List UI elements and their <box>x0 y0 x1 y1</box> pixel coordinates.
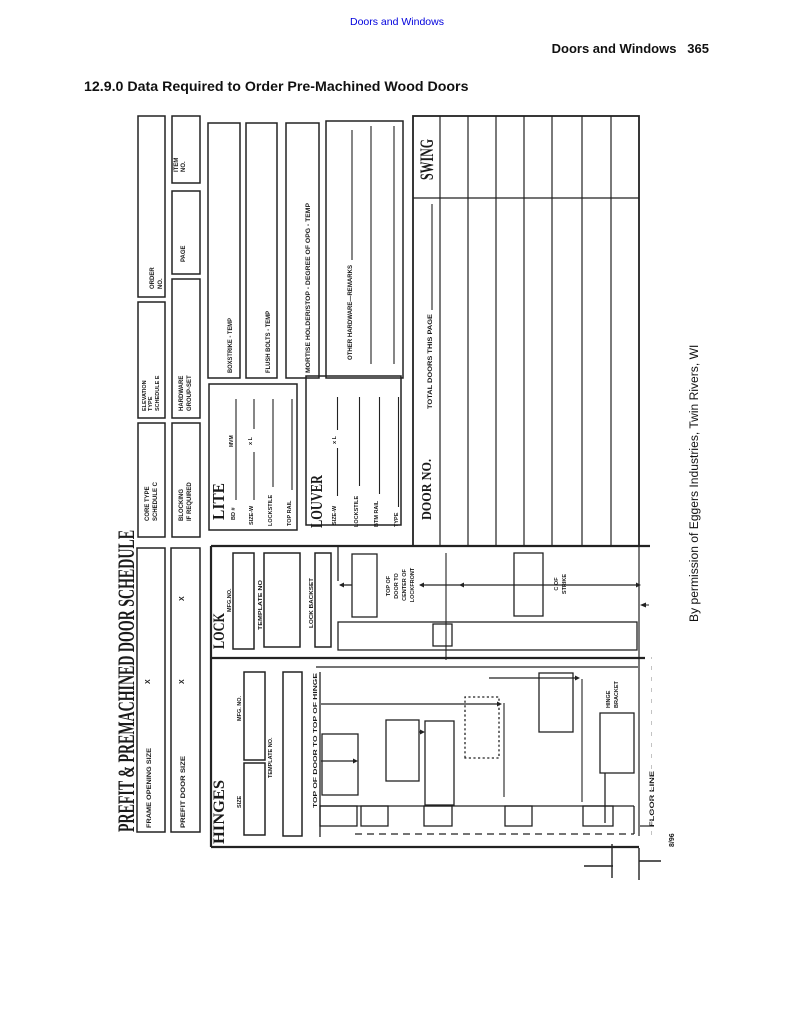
svg-text:BRACKET: BRACKET <box>614 680 620 708</box>
svg-text:SWING: SWING <box>418 139 438 180</box>
svg-text:SIZE-W: SIZE-W <box>249 505 255 525</box>
svg-text:PREFIT DOOR SIZE: PREFIT DOOR SIZE <box>181 756 187 828</box>
svg-text:NO.: NO. <box>158 278 164 289</box>
svg-text:MFG.NO.: MFG.NO. <box>227 588 233 612</box>
svg-text:TEMPLATE NO.: TEMPLATE NO. <box>268 737 274 778</box>
svg-text:X: X <box>145 679 152 684</box>
svg-text:NO.: NO. <box>181 161 187 172</box>
svg-text:LOCKFRONT: LOCKFRONT <box>410 567 416 602</box>
svg-text:LOCKSTILE: LOCKSTILE <box>354 496 360 527</box>
svg-text:SCHEDULE E: SCHEDULE E <box>155 375 161 411</box>
svg-text:8/96: 8/96 <box>669 833 676 847</box>
svg-text:X: X <box>179 596 186 601</box>
svg-text:HINGE: HINGE <box>606 690 612 708</box>
svg-text:BD #: BD # <box>231 507 237 520</box>
svg-text:MVM: MVM <box>229 435 235 447</box>
svg-text:FRAME OPENING SIZE: FRAME OPENING SIZE <box>147 748 153 828</box>
svg-text:C OF: C OF <box>554 577 560 591</box>
svg-text:TOP OF DOOR TO TOP OF HINGE: TOP OF DOOR TO TOP OF HINGE <box>313 673 319 808</box>
svg-text:LOCK BACKSET: LOCK BACKSET <box>309 577 315 628</box>
svg-text:PAGE: PAGE <box>181 245 187 262</box>
svg-text:TOTAL DOORS THIS PAGE: TOTAL DOORS THIS PAGE <box>428 314 434 409</box>
svg-text:BTM RAIL: BTM RAIL <box>374 500 380 527</box>
svg-text:ORDER: ORDER <box>150 267 156 289</box>
svg-text:HARDWARE: HARDWARE <box>179 376 185 411</box>
svg-text:LOUVER: LOUVER <box>307 474 326 528</box>
svg-text:SIZE: SIZE <box>237 795 243 808</box>
svg-text:SCHEDULE C: SCHEDULE C <box>153 481 159 521</box>
svg-text:IF REQUIRED: IF REQUIRED <box>187 482 193 521</box>
svg-text:BOXSTRIKE - TEMP: BOXSTRIKE - TEMP <box>228 318 234 373</box>
svg-text:DOOR NO.: DOOR NO. <box>419 459 434 520</box>
svg-text:TOP OF: TOP OF <box>386 575 392 596</box>
svg-text:TOP RAIL: TOP RAIL <box>287 500 293 526</box>
svg-text:LITE: LITE <box>209 483 228 520</box>
svg-text:DOOR TO: DOOR TO <box>394 573 400 599</box>
svg-text:x L: x L <box>332 435 338 444</box>
svg-text:CORE TYPE: CORE TYPE <box>145 486 151 521</box>
svg-text:ITEM: ITEM <box>174 158 180 172</box>
svg-text:CENTER OF: CENTER OF <box>402 568 408 600</box>
svg-text:MFG. NO.: MFG. NO. <box>237 695 243 721</box>
svg-text:FLUSH BOLTS - TEMP: FLUSH BOLTS - TEMP <box>266 311 272 373</box>
svg-text:TYPE: TYPE <box>148 396 154 411</box>
svg-text:OTHER HARDWARE—REMARKS: OTHER HARDWARE—REMARKS <box>348 265 354 360</box>
svg-text:LOCKSTILE: LOCKSTILE <box>268 495 274 526</box>
svg-text:x L: x L <box>248 436 254 445</box>
svg-text:GROUP-SET: GROUP-SET <box>187 375 193 411</box>
svg-text:SIZE-W: SIZE-W <box>332 505 338 525</box>
svg-text:BLOCKING: BLOCKING <box>179 489 185 521</box>
svg-text:X: X <box>179 679 186 684</box>
svg-text:HINGES: HINGES <box>211 780 228 844</box>
svg-text:FLOOR LINE: FLOOR LINE <box>650 771 656 827</box>
svg-text:TYPE: TYPE <box>394 512 400 527</box>
svg-text:STRIKE: STRIKE <box>562 574 568 595</box>
svg-text:TEMPLATE NO: TEMPLATE NO <box>258 579 264 630</box>
svg-text:MORTISE HOLDER/STOP - DEGREE O: MORTISE HOLDER/STOP - DEGREE OF OPG - TE… <box>306 203 312 373</box>
svg-text:PREFIT & PREMACHINED DOOR SCHE: PREFIT & PREMACHINED DOOR SCHEDULE <box>114 530 140 832</box>
svg-text:LOCK: LOCK <box>211 613 228 649</box>
